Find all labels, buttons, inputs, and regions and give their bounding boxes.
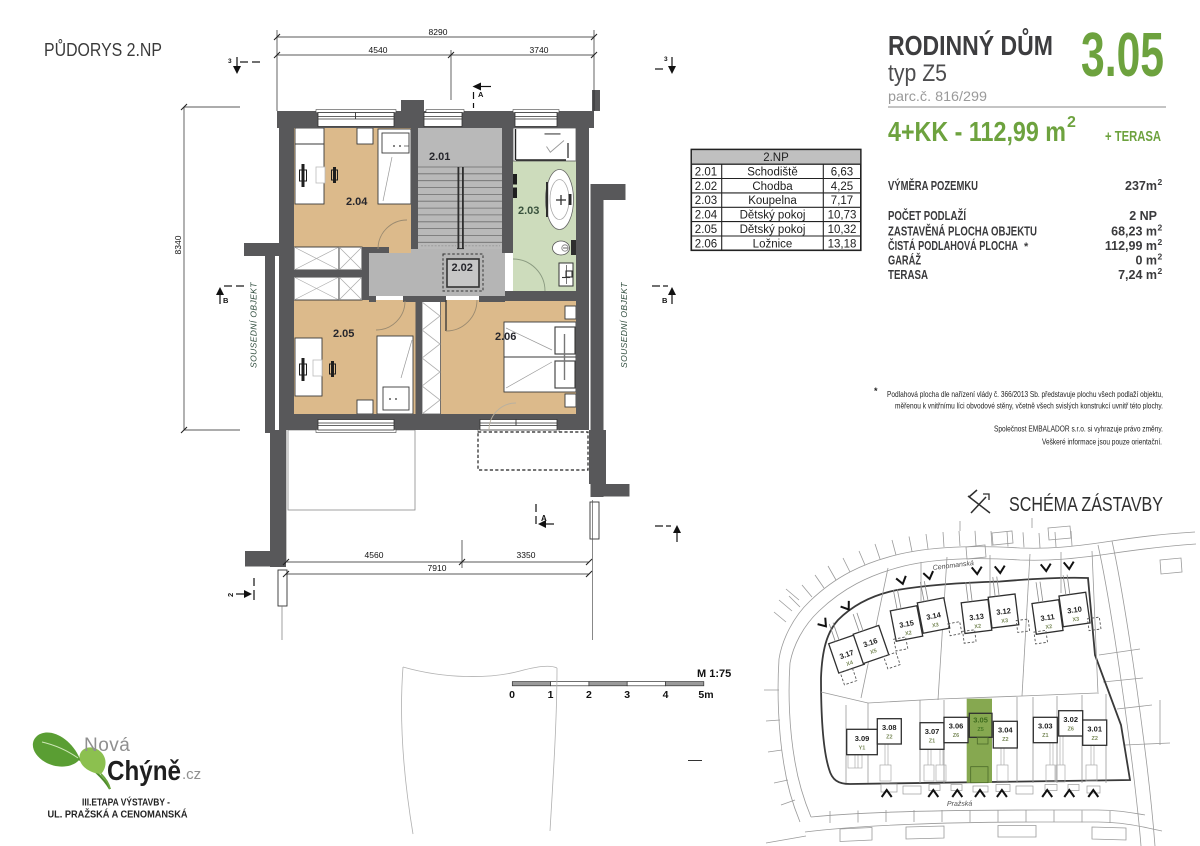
svg-text:*: *: [1024, 241, 1029, 253]
svg-text:3.04: 3.04: [998, 726, 1013, 735]
svg-text:0: 0: [509, 689, 515, 701]
svg-text:Chodba: Chodba: [752, 181, 793, 193]
svg-text:2.01: 2.01: [429, 151, 450, 163]
svg-text:112,99 m: 112,99 m: [1105, 239, 1157, 253]
svg-text:3.07: 3.07: [925, 727, 940, 736]
svg-text:3.08: 3.08: [882, 723, 897, 732]
svg-text:10,73: 10,73: [828, 210, 857, 222]
svg-text:.cz: .cz: [182, 766, 201, 783]
svg-text:Dětský pokoj: Dětský pokoj: [740, 224, 806, 236]
svg-text:X3: X3: [1072, 616, 1080, 623]
svg-text:Z2: Z2: [1002, 737, 1008, 743]
svg-text:GARÁŽ: GARÁŽ: [888, 253, 921, 268]
svg-text:4: 4: [663, 689, 669, 701]
svg-text:2.03: 2.03: [518, 205, 539, 217]
svg-text:Koupelna: Koupelna: [748, 195, 797, 207]
svg-text:3.01: 3.01: [1087, 725, 1102, 734]
svg-text:měřenou k vnitřnímu líci obvod: měřenou k vnitřnímu líci obvodové stěny,…: [895, 402, 1163, 411]
svg-text:typ Z5: typ Z5: [888, 60, 947, 87]
svg-text:4+KK - 112,99 m: 4+KK - 112,99 m: [888, 116, 1066, 147]
svg-text:+ TERASA: + TERASA: [1105, 128, 1161, 145]
svg-text:SCHÉMA ZÁSTAVBY: SCHÉMA ZÁSTAVBY: [1009, 493, 1163, 516]
svg-text:8290: 8290: [429, 27, 448, 37]
svg-text:7,24 m: 7,24 m: [1118, 268, 1157, 282]
svg-text:3.05: 3.05: [973, 716, 988, 725]
svg-text:4560: 4560: [365, 550, 384, 560]
svg-text:Schodiště: Schodiště: [747, 167, 798, 179]
svg-text:13,18: 13,18: [828, 238, 857, 250]
svg-text:3.02: 3.02: [1063, 715, 1078, 724]
svg-text:2.05: 2.05: [695, 224, 717, 236]
svg-text:2.03: 2.03: [695, 195, 717, 207]
svg-text:4,25: 4,25: [831, 181, 853, 193]
svg-text:2: 2: [1067, 114, 1076, 131]
svg-text:Z1: Z1: [929, 739, 935, 745]
svg-text:6,63: 6,63: [831, 167, 853, 179]
svg-text:2: 2: [1158, 177, 1163, 187]
svg-text:2.NP: 2.NP: [763, 152, 789, 164]
svg-text:III.ETAPA VÝSTAVBY -: III.ETAPA VÝSTAVBY -: [82, 796, 170, 809]
svg-text:B: B: [662, 296, 668, 305]
svg-text:M 1:75: M 1:75: [697, 668, 731, 680]
svg-text:2.02: 2.02: [452, 262, 473, 274]
svg-text:B: B: [223, 296, 229, 305]
svg-text:3.03: 3.03: [1038, 722, 1053, 731]
svg-text:2.01: 2.01: [695, 167, 717, 179]
svg-text:Z2: Z2: [886, 735, 892, 741]
svg-text:SOUSEDNÍ OBJEKT: SOUSEDNÍ OBJEKT: [619, 282, 629, 368]
svg-text:5m: 5m: [698, 689, 713, 701]
svg-text:SOUSEDNÍ OBJEKT: SOUSEDNÍ OBJEKT: [249, 282, 259, 368]
svg-text:parc.č. 816/299: parc.č. 816/299: [888, 88, 987, 104]
svg-text:2.06: 2.06: [695, 238, 717, 250]
svg-text:4540: 4540: [369, 45, 388, 55]
svg-text:A: A: [478, 90, 484, 99]
svg-text:A: A: [541, 514, 547, 523]
svg-text:UL. PRAŽSKÁ A CENOMANSKÁ: UL. PRAŽSKÁ A CENOMANSKÁ: [48, 808, 188, 821]
svg-text:X3: X3: [1001, 618, 1008, 625]
svg-text:7910: 7910: [428, 563, 447, 573]
svg-text:Veškeré informace jsou pouze o: Veškeré informace jsou pouze orientační.: [1042, 438, 1162, 447]
svg-text:3.13: 3.13: [969, 612, 985, 623]
svg-text:Z6: Z6: [1067, 727, 1073, 733]
svg-text:RODINNÝ DŮM: RODINNÝ DŮM: [888, 28, 1053, 61]
svg-text:1: 1: [548, 689, 554, 701]
svg-text:Y1: Y1: [859, 746, 866, 752]
svg-text:X2: X2: [974, 624, 981, 631]
svg-text:Z1: Z1: [1042, 733, 1048, 739]
svg-text:X2: X2: [905, 630, 913, 637]
svg-text:2.04: 2.04: [346, 196, 368, 208]
svg-text:X3: X3: [932, 622, 940, 629]
svg-text:3740: 3740: [530, 45, 549, 55]
svg-text:3: 3: [624, 689, 630, 701]
svg-text:X2: X2: [1045, 624, 1053, 631]
svg-text:68,23 m: 68,23 m: [1111, 224, 1157, 238]
svg-text:Z5: Z5: [977, 727, 983, 733]
svg-text:TERASA: TERASA: [888, 268, 928, 282]
svg-text:3: 3: [664, 56, 668, 63]
svg-text:2.02: 2.02: [695, 181, 717, 193]
svg-text:2: 2: [1158, 222, 1163, 232]
svg-text:2: 2: [226, 593, 235, 597]
svg-text:0 m: 0 m: [1135, 254, 1157, 268]
svg-text:Podlahová plocha dle nařízení: Podlahová plocha dle nařízení vlády č. 3…: [887, 390, 1163, 399]
svg-text:Pražská: Pražská: [947, 801, 973, 808]
svg-text:7,17: 7,17: [831, 195, 853, 207]
svg-text:Ložnice: Ložnice: [753, 238, 793, 250]
svg-text:ČISTÁ PODLAHOVÁ PLOCHA: ČISTÁ PODLAHOVÁ PLOCHA: [888, 238, 1018, 253]
svg-text:3: 3: [228, 58, 232, 65]
svg-text:Z6: Z6: [953, 733, 959, 739]
svg-text:POČET PODLAŽÍ: POČET PODLAŽÍ: [888, 208, 966, 223]
svg-text:Z2: Z2: [1091, 736, 1097, 742]
svg-text:10,32: 10,32: [828, 224, 857, 236]
svg-text:2: 2: [586, 689, 592, 701]
svg-text:Nová: Nová: [84, 735, 130, 756]
svg-text:2.06: 2.06: [495, 331, 516, 343]
svg-text:2: 2: [1158, 237, 1163, 247]
svg-text:VÝMĚRA POZEMKU: VÝMĚRA POZEMKU: [888, 178, 978, 193]
svg-text:2: 2: [1158, 266, 1163, 276]
svg-text:2: 2: [1158, 252, 1163, 262]
svg-text:3.06: 3.06: [949, 722, 964, 731]
svg-text:3.12: 3.12: [996, 606, 1012, 617]
svg-text:Společnost EMBALADOR s.r.o. si: Společnost EMBALADOR s.r.o. si vyhrazuje…: [994, 425, 1163, 434]
svg-text:Dětský pokoj: Dětský pokoj: [740, 210, 806, 222]
svg-text:2 NP: 2 NP: [1129, 209, 1157, 223]
svg-text:2.05: 2.05: [333, 328, 354, 340]
svg-text:*: *: [874, 386, 878, 396]
svg-text:2.04: 2.04: [695, 210, 718, 222]
svg-text:3.09: 3.09: [855, 734, 870, 743]
svg-text:PŮDORYS 2.NP: PŮDORYS 2.NP: [44, 39, 162, 60]
svg-text:ZASTAVĚNÁ PLOCHA OBJEKTU: ZASTAVĚNÁ PLOCHA OBJEKTU: [888, 223, 1037, 238]
svg-text:8340: 8340: [173, 235, 183, 254]
svg-text:237m: 237m: [1125, 179, 1157, 193]
svg-text:3350: 3350: [517, 550, 536, 560]
svg-text:Chýně: Chýně: [107, 755, 181, 786]
svg-text:3.05: 3.05: [1081, 21, 1164, 90]
